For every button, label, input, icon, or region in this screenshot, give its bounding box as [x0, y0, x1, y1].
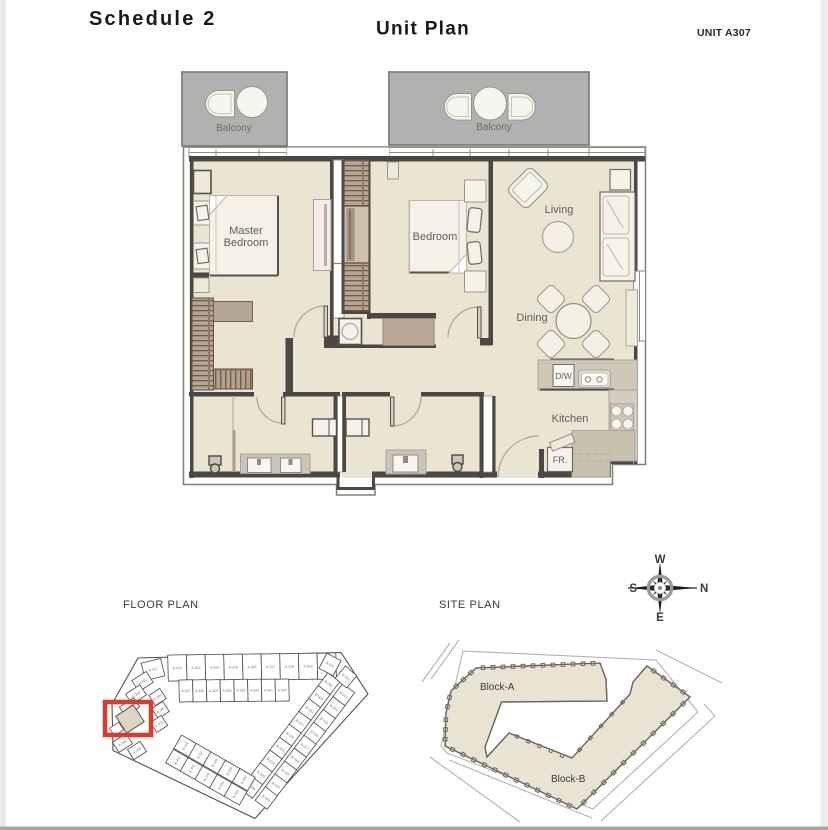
svg-text:Unit Plan: Unit Plan	[376, 19, 470, 40]
svg-text:A-322: A-322	[250, 688, 259, 692]
svg-text:A-317: A-317	[266, 665, 275, 669]
svg-text:SITE PLAN: SITE PLAN	[439, 599, 501, 611]
svg-text:A-326: A-326	[195, 689, 204, 693]
svg-text:A-321: A-321	[264, 688, 273, 692]
svg-text:FLOOR PLAN: FLOOR PLAN	[123, 599, 199, 611]
svg-text:A-318: A-318	[285, 665, 294, 669]
svg-text:W: W	[655, 554, 666, 566]
svg-text:E: E	[656, 612, 664, 624]
svg-text:A-320: A-320	[278, 688, 287, 692]
svg-text:A-314: A-314	[210, 665, 219, 669]
svg-text:Balcony: Balcony	[476, 122, 512, 133]
svg-text:S: S	[629, 583, 637, 595]
svg-text:A-323: A-323	[236, 688, 245, 692]
svg-text:A-313: A-313	[191, 666, 200, 670]
svg-text:Master: Master	[229, 225, 263, 237]
svg-text:Kitchen: Kitchen	[552, 413, 589, 425]
svg-text:A-312: A-312	[173, 666, 182, 670]
svg-text:D/W: D/W	[555, 371, 572, 381]
svg-text:Block-A: Block-A	[480, 682, 515, 693]
svg-text:Block-B: Block-B	[551, 774, 586, 785]
svg-text:Dining: Dining	[516, 312, 547, 324]
svg-text:A-327: A-327	[181, 689, 190, 693]
svg-text:A-316: A-316	[247, 665, 256, 669]
svg-text:Balcony: Balcony	[216, 123, 252, 134]
svg-text:A-319: A-319	[303, 664, 312, 668]
svg-text:Living: Living	[545, 204, 574, 216]
svg-text:A-324: A-324	[223, 689, 232, 693]
svg-text:Schedule 2: Schedule 2	[89, 8, 217, 30]
svg-text:FR.: FR.	[553, 455, 568, 465]
svg-text:Bedroom: Bedroom	[224, 237, 269, 249]
svg-text:Bedroom: Bedroom	[413, 231, 458, 243]
svg-text:UNIT A307: UNIT A307	[697, 27, 751, 39]
svg-text:A-315: A-315	[229, 665, 238, 669]
svg-text:N: N	[700, 583, 708, 595]
svg-text:A-325: A-325	[209, 689, 218, 693]
